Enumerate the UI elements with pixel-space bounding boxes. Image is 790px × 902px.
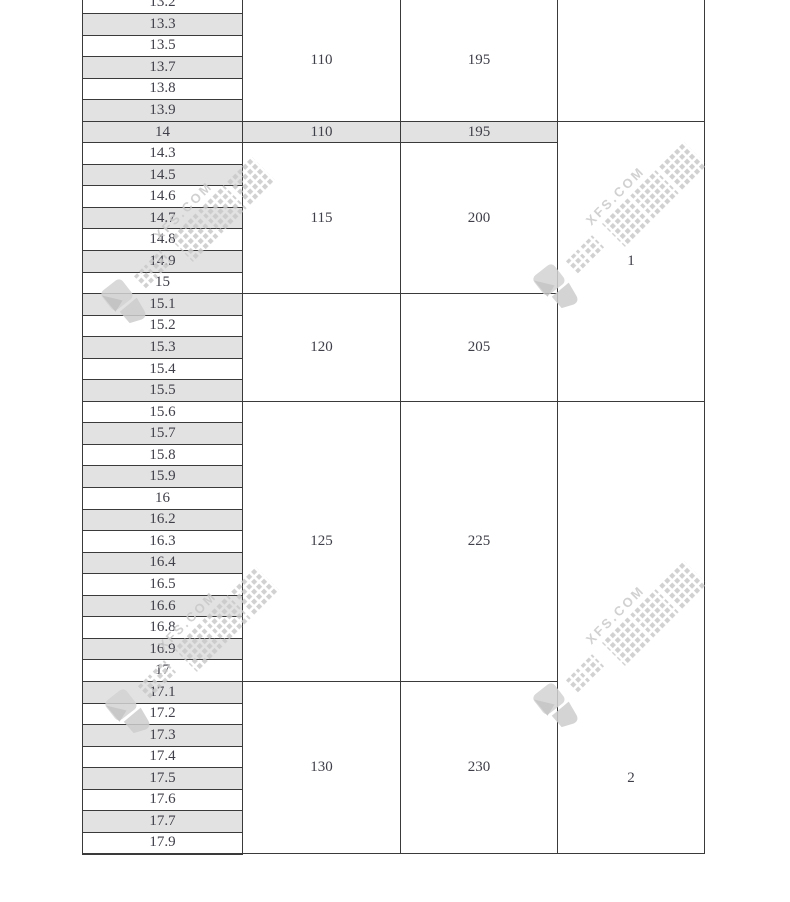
col1-size-cell: 15.1 xyxy=(83,294,243,316)
col2-value-cell: 115 xyxy=(243,143,401,294)
col1-size-cell: 17.3 xyxy=(83,725,243,747)
col1-size-cell: 15.6 xyxy=(83,401,243,423)
col1-size-cell: 15.4 xyxy=(83,358,243,380)
col1-size-cell: 15.3 xyxy=(83,337,243,359)
col2-value-cell: 110 xyxy=(243,121,401,143)
col1-size-cell: 13.9 xyxy=(83,100,243,122)
col3-value-cell: 205 xyxy=(401,294,558,402)
col4-group-cell: 2 xyxy=(558,401,705,853)
col1-size-cell: 15 xyxy=(83,272,243,294)
col1-size-cell: 16.5 xyxy=(83,574,243,596)
col1-size-cell: 17.1 xyxy=(83,681,243,703)
col1-size-cell: 16.8 xyxy=(83,617,243,639)
col4-group-cell xyxy=(558,0,705,121)
col2-value-cell: 125 xyxy=(243,401,401,681)
col2-value-cell: 130 xyxy=(243,681,401,853)
col1-size-cell: 13.2 xyxy=(83,0,243,14)
document-page: XFS.COM 13.2 110 195 13.3 13.5 13.7 13.8 xyxy=(0,0,790,902)
col1-size-cell: 17.4 xyxy=(83,746,243,768)
col1-size-cell: 14.6 xyxy=(83,186,243,208)
col1-size-cell: 15.8 xyxy=(83,444,243,466)
col1-size-cell: 16.3 xyxy=(83,531,243,553)
col3-value-cell: 195 xyxy=(401,121,558,143)
col1-size-cell: 13.5 xyxy=(83,35,243,57)
col3-value-cell: 230 xyxy=(401,681,558,853)
col1-size-cell: 17.5 xyxy=(83,768,243,790)
col1-size-cell: 17.2 xyxy=(83,703,243,725)
col1-size-cell: 17.7 xyxy=(83,811,243,833)
col1-size-cell: 13.7 xyxy=(83,57,243,79)
col1-size-cell: 13.3 xyxy=(83,14,243,36)
col1-size-cell: 14.9 xyxy=(83,251,243,273)
col2-value-cell: 120 xyxy=(243,294,401,402)
col1-size-cell: 15.5 xyxy=(83,380,243,402)
col1-size-cell: 15.9 xyxy=(83,466,243,488)
col4-group-cell: 1 xyxy=(558,121,705,401)
col1-size-cell: 13.8 xyxy=(83,78,243,100)
col1-size-cell: 16.9 xyxy=(83,638,243,660)
col1-size-cell: 14.5 xyxy=(83,164,243,186)
col1-size-cell: 14 xyxy=(83,121,243,143)
col1-size-cell: 16.6 xyxy=(83,595,243,617)
col1-size-cell: 17.9 xyxy=(83,832,243,854)
col1-size-cell: 16 xyxy=(83,488,243,510)
col3-value-cell: 195 xyxy=(401,0,558,121)
col1-size-cell: 17.6 xyxy=(83,789,243,811)
col3-value-cell: 225 xyxy=(401,401,558,681)
col1-size-cell: 15.2 xyxy=(83,315,243,337)
col1-size-cell: 14.3 xyxy=(83,143,243,165)
col1-size-cell: 16.4 xyxy=(83,552,243,574)
col1-size-cell: 17 xyxy=(83,660,243,682)
col1-size-cell: 16.2 xyxy=(83,509,243,531)
col1-size-cell: 14.8 xyxy=(83,229,243,251)
col1-size-cell: 15.7 xyxy=(83,423,243,445)
spec-table: 13.2 110 195 13.3 13.5 13.7 13.8 13.9 14… xyxy=(82,0,705,855)
col3-value-cell: 200 xyxy=(401,143,558,294)
col1-size-cell: 14.7 xyxy=(83,207,243,229)
col2-value-cell: 110 xyxy=(243,0,401,121)
